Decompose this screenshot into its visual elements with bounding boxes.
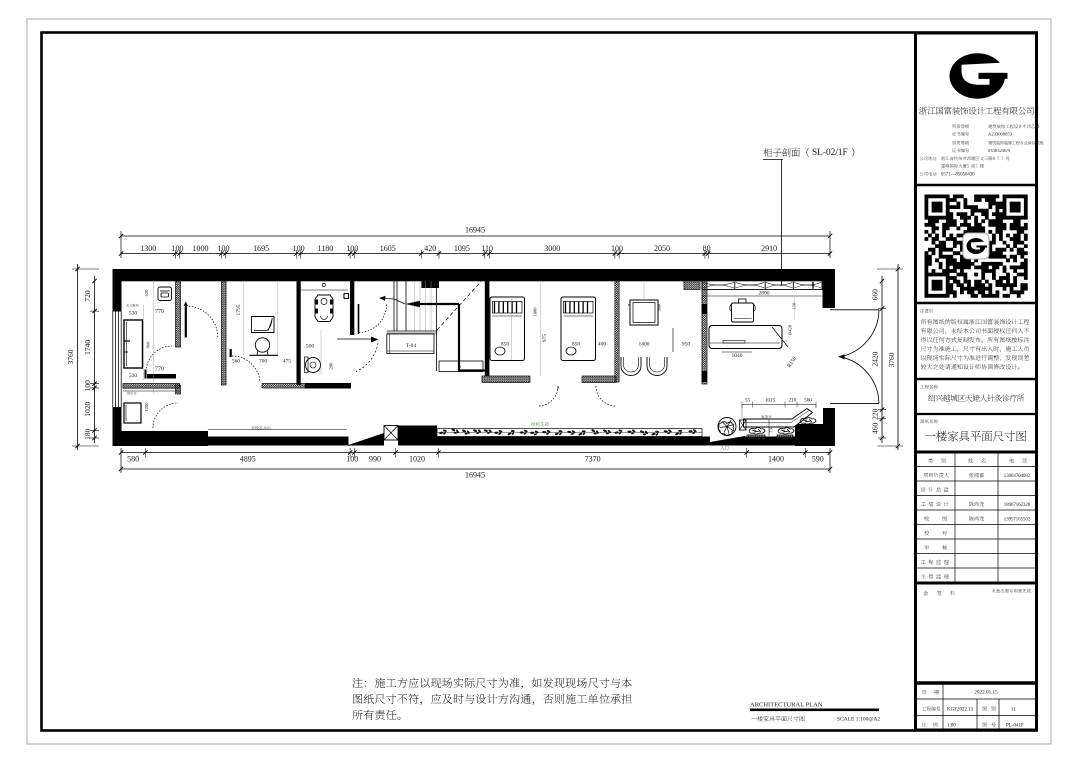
svg-text:1020: 1020: [83, 401, 92, 416]
svg-text:770: 770: [155, 309, 164, 315]
svg-text:460: 460: [871, 423, 880, 435]
svg-text:55: 55: [745, 398, 751, 404]
svg-text:80: 80: [703, 244, 711, 253]
svg-text:960: 960: [146, 341, 151, 349]
svg-text:475: 475: [283, 359, 292, 365]
svg-text:100: 100: [293, 244, 305, 253]
svg-text:560: 560: [232, 359, 241, 365]
svg-text:110: 110: [481, 244, 493, 253]
svg-text:13064704082: 13064704082: [1004, 474, 1031, 479]
svg-text:1200: 1200: [144, 402, 149, 412]
svg-text:1695: 1695: [253, 244, 269, 253]
svg-text:500: 500: [306, 344, 315, 350]
svg-text:Ø420: Ø420: [788, 324, 793, 335]
svg-text:ARCHITECTURAL PLAN: ARCHITECTURAL PLAN: [750, 702, 823, 709]
svg-text:1000: 1000: [193, 244, 209, 253]
svg-text:530: 530: [129, 311, 138, 317]
svg-text:180: 180: [83, 428, 92, 440]
svg-text:7370: 7370: [585, 455, 601, 464]
svg-text:18967162328: 18967162328: [1004, 503, 1031, 508]
svg-text:KGF2022.13: KGF2022.13: [947, 708, 974, 713]
svg-text:11: 11: [1011, 708, 1016, 713]
svg-text:900: 900: [657, 304, 662, 312]
svg-text:100: 100: [83, 380, 92, 392]
svg-text:560: 560: [804, 398, 812, 404]
svg-text:660: 660: [871, 289, 880, 301]
svg-text:1605: 1605: [380, 244, 396, 253]
svg-text:A233008853: A233008853: [988, 132, 1013, 137]
svg-text:1040: 1040: [732, 353, 743, 359]
svg-text:16945: 16945: [465, 226, 485, 235]
svg-text:1740: 1740: [83, 340, 92, 355]
svg-text:PL-041F: PL-041F: [1006, 724, 1024, 729]
svg-text:990: 990: [369, 455, 381, 464]
svg-text:3760: 3760: [66, 349, 75, 364]
svg-text:770: 770: [155, 367, 164, 373]
svg-text:16945: 16945: [465, 471, 485, 480]
svg-text:150: 150: [792, 302, 797, 310]
svg-text:1300: 1300: [140, 244, 156, 253]
svg-text:T-04: T-04: [406, 343, 416, 349]
svg-text:100: 100: [346, 455, 358, 464]
svg-text:750: 750: [769, 426, 774, 432]
svg-text:950: 950: [682, 342, 691, 348]
svg-text:1400: 1400: [639, 342, 650, 348]
svg-text:220: 220: [871, 408, 880, 420]
svg-text:4895: 4895: [240, 455, 256, 464]
svg-text:13957165502: 13957165502: [1004, 518, 1031, 523]
svg-text:1095: 1095: [454, 244, 470, 253]
svg-text:400: 400: [598, 342, 607, 348]
svg-text:100: 100: [346, 244, 358, 253]
svg-text:100: 100: [611, 244, 623, 253]
svg-text:2050: 2050: [654, 244, 670, 253]
svg-text:580: 580: [127, 455, 139, 464]
svg-text:1015: 1015: [765, 398, 776, 404]
svg-text:620: 620: [144, 289, 149, 297]
svg-text:850: 850: [501, 342, 510, 348]
svg-text:1:80: 1:80: [947, 724, 956, 729]
svg-text:1400: 1400: [768, 455, 784, 464]
svg-text:700: 700: [259, 359, 268, 365]
svg-text:2910: 2910: [761, 244, 777, 253]
svg-text:420: 420: [424, 244, 436, 253]
svg-text:975: 975: [542, 334, 548, 343]
svg-text:100: 100: [172, 244, 184, 253]
svg-text:SCALE 1:100@A2: SCALE 1:100@A2: [837, 717, 880, 723]
svg-text:210: 210: [789, 398, 797, 404]
svg-text:1020: 1020: [409, 455, 425, 464]
svg-text:SL-02/1F: SL-02/1F: [812, 148, 848, 158]
svg-text:720: 720: [83, 290, 92, 302]
svg-text:0571—85050430: 0571—85050430: [941, 173, 975, 178]
svg-text:1800: 1800: [533, 307, 538, 317]
svg-text:1795: 1795: [236, 304, 242, 315]
svg-text:2800: 2800: [759, 291, 770, 297]
svg-text:3000: 3000: [544, 244, 560, 253]
svg-text:100: 100: [218, 244, 230, 253]
svg-text:03303236/9: 03303236/9: [988, 148, 1011, 153]
svg-text:1180: 1180: [318, 244, 334, 253]
svg-text:2420: 2420: [871, 351, 880, 366]
svg-text:200: 200: [329, 362, 334, 370]
svg-text:3760: 3760: [887, 352, 896, 367]
svg-text:530: 530: [129, 373, 138, 379]
svg-text:590: 590: [812, 455, 824, 464]
svg-text:2022.01.15: 2022.01.15: [974, 690, 998, 696]
svg-text:850: 850: [572, 342, 581, 348]
